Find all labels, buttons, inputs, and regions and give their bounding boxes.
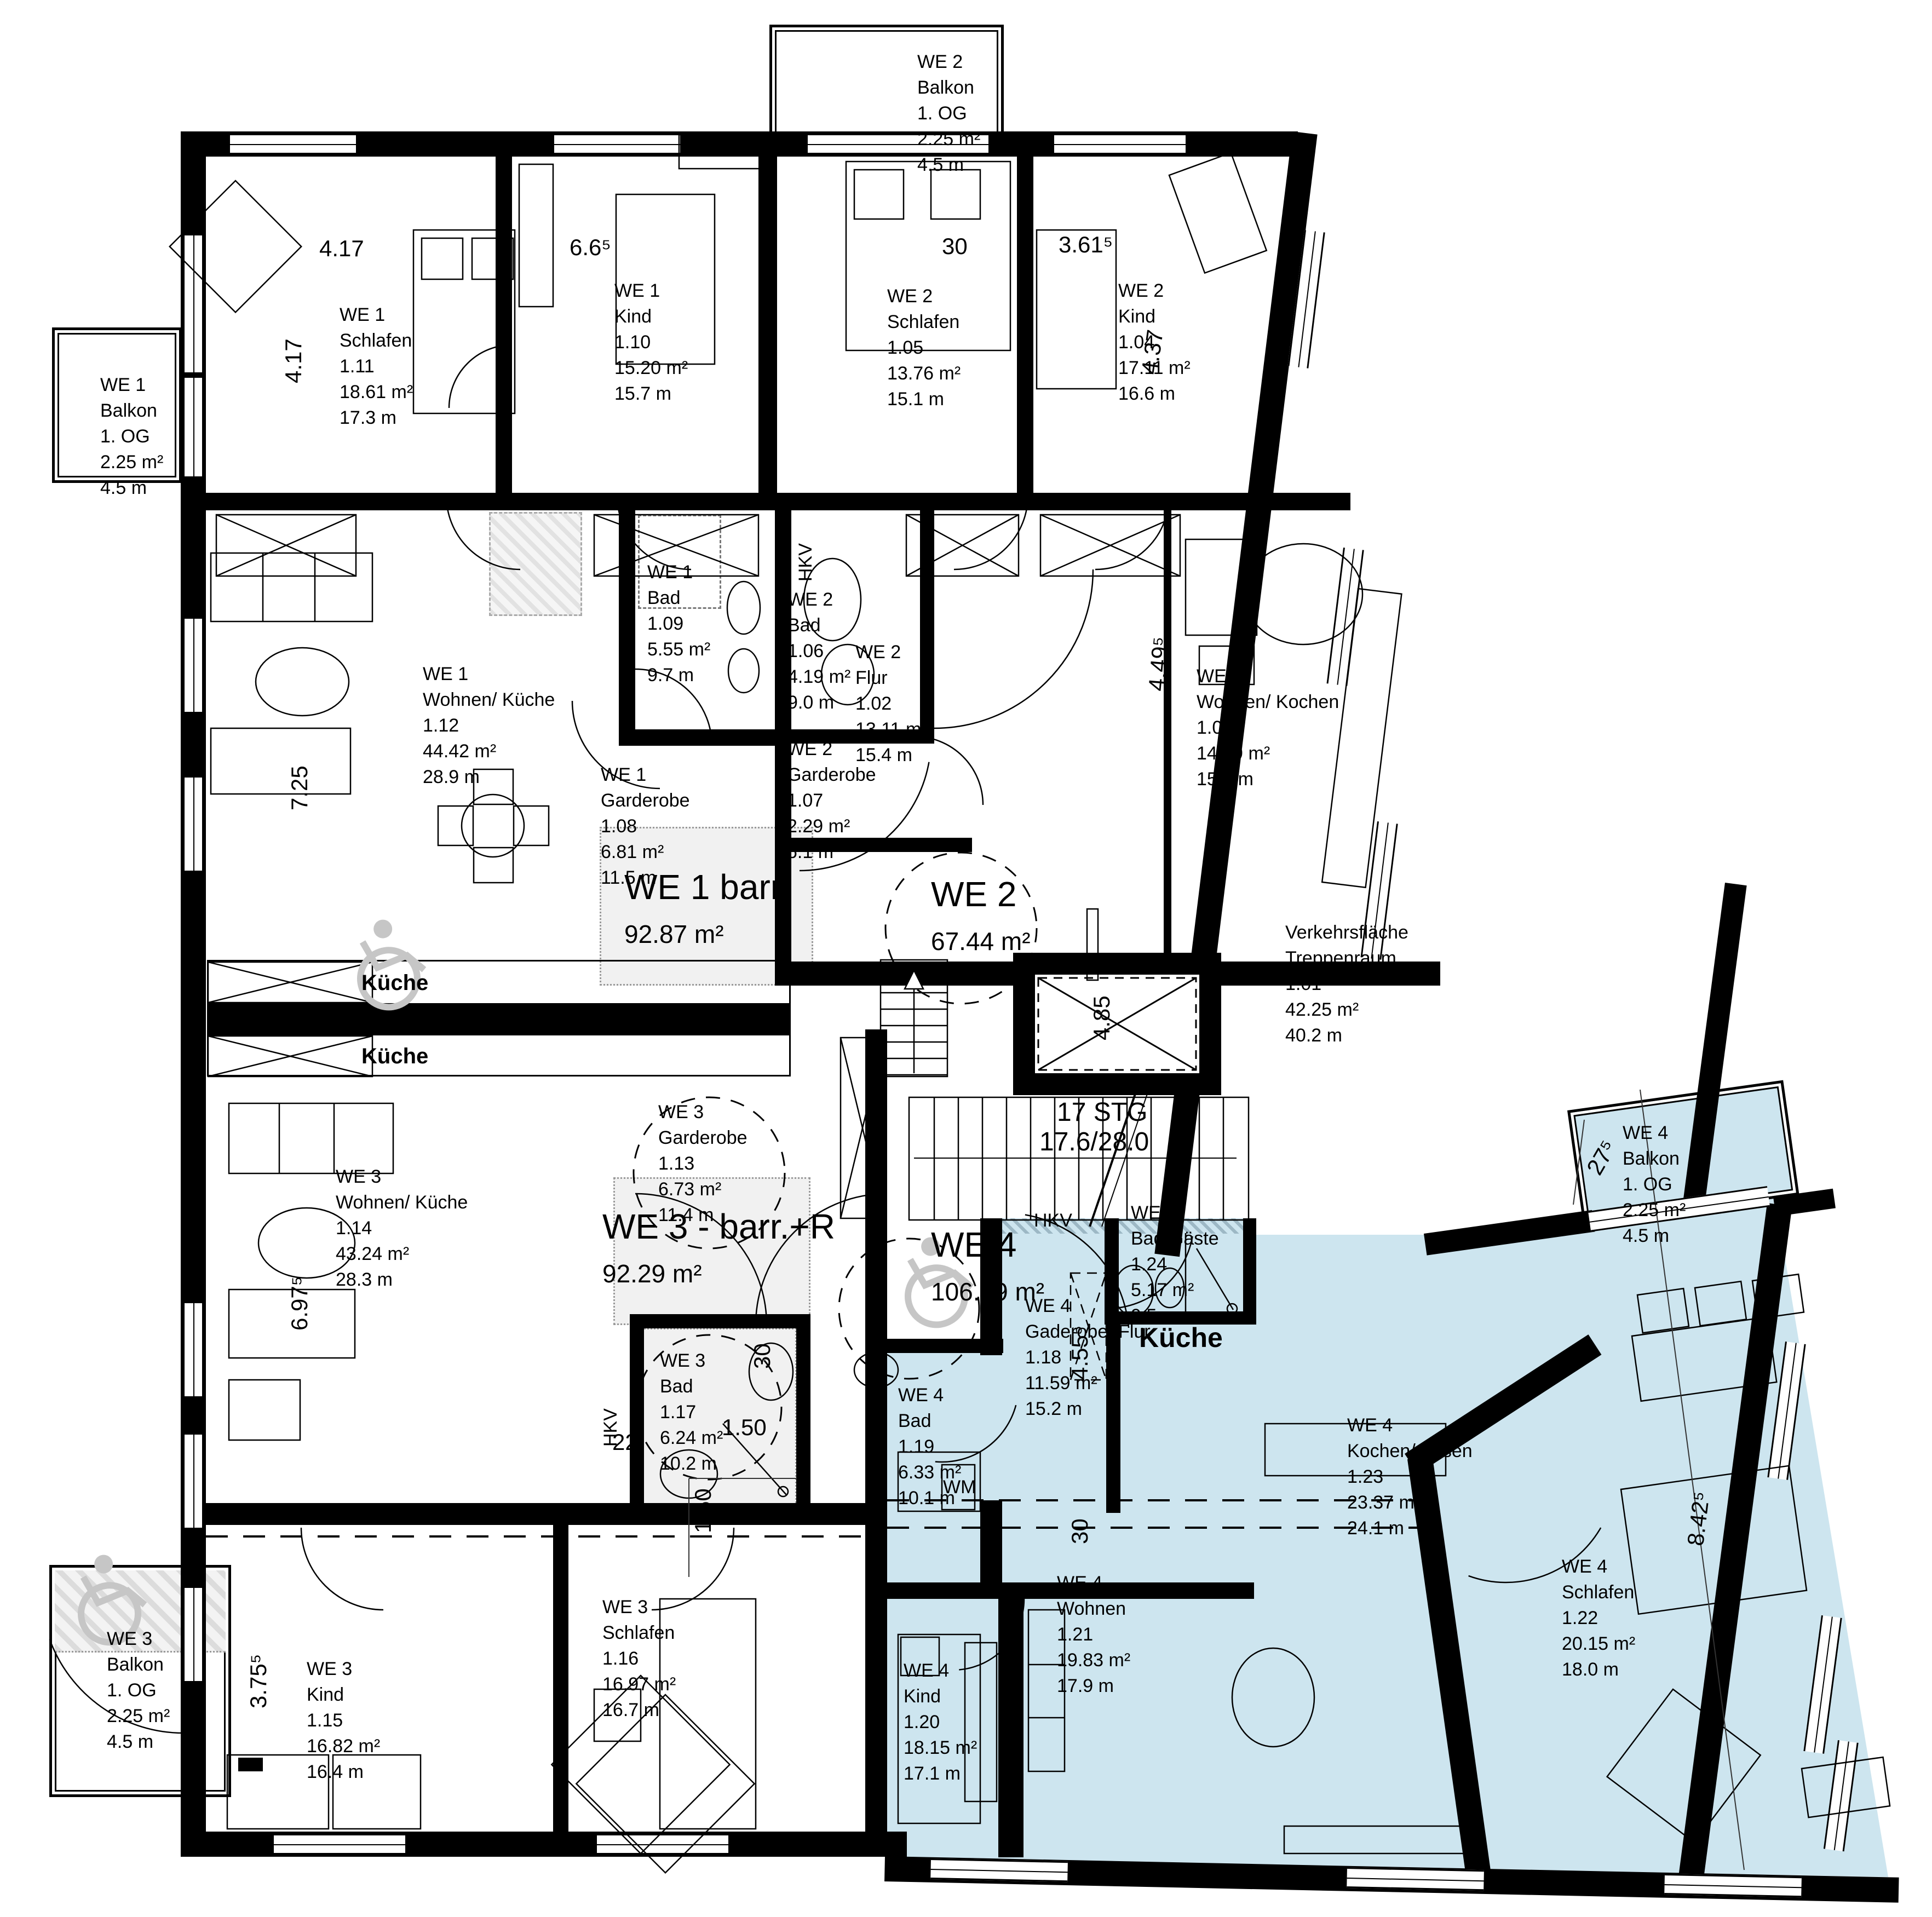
balcony-name: Balkon xyxy=(107,1652,170,1678)
balcony-area: 2.25 m² xyxy=(1623,1198,1686,1223)
furniture xyxy=(256,648,349,716)
furniture xyxy=(211,728,350,794)
room-name: Bad xyxy=(898,1408,961,1434)
room-area: 43.24 m² xyxy=(336,1241,468,1267)
room-we: WE 4 xyxy=(904,1658,977,1684)
room-label: WE 2Schlafen1.0513.76 m²15.1 m xyxy=(887,284,961,412)
balcony-we: WE 2 xyxy=(917,49,980,75)
door-arc xyxy=(449,345,512,408)
room-label: WE 2Garderobe1.072.29 m²6.1 m xyxy=(787,736,876,865)
balcony-floor: 1. OG xyxy=(100,424,163,450)
dimension-label: 4.49⁵ xyxy=(1143,636,1174,692)
furniture xyxy=(1087,909,1098,980)
door-arc xyxy=(446,496,520,569)
room-perimeter: 16.7 m xyxy=(602,1697,676,1723)
room-we: WE 2 xyxy=(787,587,850,613)
dimension-text: 30 xyxy=(1067,1518,1092,1544)
room-area: 2.29 m² xyxy=(787,814,876,839)
room-we: WE 1 xyxy=(647,560,710,585)
dimension-text: 4.85 xyxy=(1089,995,1114,1040)
door-arc xyxy=(954,496,1028,569)
room-label: WE 3Schlafen1.1616.97 m²16.7 m xyxy=(602,1594,676,1723)
furniture xyxy=(514,806,549,845)
room-perimeter: 16.6 m xyxy=(1118,381,1191,407)
room-we: WE 2 xyxy=(1118,278,1191,304)
balcony-name: Balkon xyxy=(1623,1146,1686,1172)
room-number: 1.20 xyxy=(904,1709,977,1735)
room-number: 1.06 xyxy=(787,638,850,664)
dimension-text: 6.97⁵ xyxy=(286,1276,312,1331)
apartment-name: WE 3 - barr.+R xyxy=(602,1207,835,1246)
room-label: WE 4Kind1.2018.15 m²17.1 m xyxy=(904,1658,977,1787)
room-perimeter: 16.4 m xyxy=(307,1759,380,1785)
room-label: WE 3Bad1.176.24 m²10.2 m xyxy=(660,1348,723,1477)
room-area: 23.37 m² xyxy=(1347,1490,1473,1516)
balcony-area: 2.25 m² xyxy=(107,1703,170,1729)
dimension-text: 4.17 xyxy=(319,235,364,261)
room-name: Wohnen xyxy=(1057,1596,1130,1622)
room-name: Bad xyxy=(647,585,710,611)
room-we: WE 2 xyxy=(1197,664,1339,689)
kitchen-label: Küche xyxy=(361,970,428,996)
apartment-area: 92.29 m² xyxy=(602,1260,835,1287)
dimension-label: 4.85 xyxy=(1089,995,1114,1040)
room-perimeter: 28.3 m xyxy=(336,1267,468,1293)
room-name: Bad xyxy=(660,1374,723,1400)
dimension-label: 22 xyxy=(612,1429,638,1455)
room-name: Kind xyxy=(307,1682,380,1708)
room-area: 16.82 m² xyxy=(307,1734,380,1759)
kitchen-text: Küche xyxy=(1139,1325,1223,1351)
room-number: 1.23 xyxy=(1347,1464,1473,1490)
furniture xyxy=(728,649,759,693)
room-area: 19.83 m² xyxy=(1057,1648,1130,1673)
room-name: Schlafen xyxy=(887,309,961,335)
floor-plan: WE 1Schlafen1.1118.61 m²17.3 mWE 1Kind1.… xyxy=(0,0,1932,1917)
furniture xyxy=(413,230,515,413)
furniture xyxy=(854,1352,898,1388)
room-number: 1.12 xyxy=(423,713,555,739)
door-arc xyxy=(1095,496,1169,569)
room-we: WE 4 xyxy=(1131,1200,1219,1226)
dimension-text: 1.50 xyxy=(690,1488,716,1533)
room-number: 1.08 xyxy=(601,814,690,839)
room-number: 1.07 xyxy=(787,788,876,814)
room-number: 1.02 xyxy=(855,691,928,717)
room-name: Kind xyxy=(614,304,688,330)
room-we: WE 4 xyxy=(1562,1554,1635,1580)
dimension-label: 3.75⁵ xyxy=(245,1654,271,1708)
room-number: 1.17 xyxy=(660,1400,723,1425)
room-number: 1.19 xyxy=(898,1434,961,1460)
room-label: WE 3Kind1.1516.82 m²16.4 m xyxy=(307,1656,380,1785)
apartment-title: WE 267.44 m² xyxy=(931,875,1031,955)
room-we: WE 3 xyxy=(660,1348,723,1374)
room-area: 16.97 m² xyxy=(602,1672,676,1697)
apartment-area: 67.44 m² xyxy=(931,928,1031,955)
room-number: 1.13 xyxy=(658,1151,748,1177)
room-perimeter: 15.1 m xyxy=(887,387,961,412)
room-number: 1.21 xyxy=(1057,1622,1130,1648)
elevator-shaft-x xyxy=(1038,978,1196,1070)
balcony-name: Balkon xyxy=(917,75,980,101)
kitchen-label: Küche xyxy=(361,1044,428,1069)
balcony-perimeter: 4.5 m xyxy=(917,152,980,178)
room-label: WE 4Kochen/ Essen1.2323.37 m²24.1 m xyxy=(1347,1413,1473,1541)
room-name: Garderobe xyxy=(658,1125,748,1151)
balcony-label: WE 4Balkon1. OG2.25 m²4.5 m xyxy=(1623,1120,1686,1249)
hkv-text: HKV xyxy=(1034,1208,1072,1234)
furniture xyxy=(854,170,904,219)
balcony-we: WE 4 xyxy=(1623,1120,1686,1146)
dimension-label: 30 xyxy=(942,233,968,259)
room-we: WE 1 xyxy=(340,302,413,328)
room-name: Flur xyxy=(855,665,928,691)
furniture xyxy=(679,135,761,169)
balcony-area: 2.25 m² xyxy=(917,126,980,152)
room-name: Wohnen/ Küche xyxy=(336,1190,468,1216)
furniture xyxy=(1284,1826,1470,1853)
kitchen-text: Küche xyxy=(361,1044,428,1069)
room-number: 1.22 xyxy=(1562,1605,1635,1631)
apartment-name: WE 4 xyxy=(931,1225,1044,1264)
room-label: WE 4Schlafen1.2220.15 m²18.0 m xyxy=(1562,1554,1635,1683)
furniture xyxy=(1802,1757,1890,1817)
room-we: WE 1 xyxy=(601,762,690,788)
room-perimeter: 17.9 m xyxy=(1057,1673,1130,1699)
hkv-label: HKV xyxy=(793,543,819,582)
door-arc xyxy=(301,1528,383,1610)
dimension-text: 30 xyxy=(749,1343,775,1369)
room-area: 18.15 m² xyxy=(904,1735,977,1761)
furniture xyxy=(727,582,760,634)
room-label: WE 1Wohnen/ Küche1.1244.42 m²28.9 m xyxy=(423,661,555,790)
door-arc xyxy=(617,496,691,569)
dimension-line xyxy=(1573,1120,1584,1205)
room-name: Kind xyxy=(1118,304,1191,330)
dimension-label: 6.97⁵ xyxy=(286,1276,312,1331)
dimension-label: 30 xyxy=(749,1343,775,1369)
dimension-text: 4.49⁵ xyxy=(1143,636,1174,692)
room-name: Garderobe xyxy=(601,788,690,814)
furniture xyxy=(1752,1274,1804,1319)
balcony-floor: 1. OG xyxy=(1623,1172,1686,1198)
room-number: 1.24 xyxy=(1131,1252,1219,1277)
furniture xyxy=(229,1103,393,1173)
balcony-perimeter: 4.5 m xyxy=(107,1729,170,1755)
room-perimeter: 15.7 m xyxy=(614,381,688,407)
closet-x-box xyxy=(1040,515,1180,576)
dimension-label: 7.25 xyxy=(286,765,312,810)
balcony-we: WE 3 xyxy=(107,1626,170,1652)
room-we: WE 4 xyxy=(1347,1413,1473,1438)
room-name: Wohnen/ Küche xyxy=(423,687,555,713)
balcony-label: WE 3Balkon1. OG2.25 m²4.5 m xyxy=(107,1626,170,1755)
room-name: Bad Gäste xyxy=(1131,1226,1219,1252)
furniture xyxy=(170,181,301,312)
hkv-text: HKV xyxy=(793,543,819,582)
apartment-area: 92.87 m² xyxy=(624,920,790,948)
room-name: Schlafen xyxy=(340,328,413,354)
furniture xyxy=(1244,544,1362,644)
room-name: Wohnen/ Kochen xyxy=(1197,689,1339,715)
room-perimeter: 9.0 m xyxy=(787,690,850,716)
stove xyxy=(238,1758,263,1771)
room-we: WE 2 xyxy=(887,284,961,309)
wm-label: WM xyxy=(943,1475,976,1500)
room-perimeter: 15.2 m xyxy=(1025,1396,1151,1422)
room-name: Treppenraum xyxy=(1285,946,1408,971)
room-number: 1.15 xyxy=(307,1708,380,1734)
room-name: Schlafen xyxy=(1562,1580,1635,1605)
room-area: 5.55 m² xyxy=(647,637,710,663)
furniture xyxy=(519,164,553,307)
hkv-label: HKV xyxy=(1034,1208,1072,1234)
furniture xyxy=(438,806,473,845)
furniture xyxy=(1632,1317,1776,1401)
room-we: WE 2 xyxy=(787,736,876,762)
room-label: WE 4Wohnen1.2119.83 m²17.9 m xyxy=(1057,1570,1130,1699)
balcony-perimeter: 4.5 m xyxy=(1623,1223,1686,1249)
room-we: WE 3 xyxy=(658,1099,748,1125)
room-name: Schlafen xyxy=(602,1620,676,1646)
balcony-floor: 1. OG xyxy=(917,101,980,126)
apartment-title: WE 4106.89 m² xyxy=(931,1225,1044,1305)
room-number: 1.16 xyxy=(602,1646,676,1672)
closet-x-box xyxy=(208,1036,372,1076)
room-number: 1.01 xyxy=(1285,971,1408,997)
apartment-title: WE 1 barr.92.87 m² xyxy=(624,868,790,948)
room-number: 1.11 xyxy=(340,354,413,379)
kitchen-text: Küche xyxy=(361,970,428,996)
closet-x-box xyxy=(208,962,372,1003)
dimension-text: 3.75⁵ xyxy=(994,1654,1020,1708)
furniture xyxy=(229,1380,300,1440)
dimension-text: 3.75⁵ xyxy=(245,1654,271,1708)
room-name: Garderobe xyxy=(787,762,876,788)
room-area: 15.20 m² xyxy=(614,355,688,381)
dimension-text: 1.50 xyxy=(722,1414,767,1440)
stairs-label: 17 STG xyxy=(1057,1098,1147,1127)
dimension-text: 7.25 xyxy=(286,765,312,810)
furniture xyxy=(1169,153,1267,273)
room-name: Kochen/ Essen xyxy=(1347,1438,1473,1464)
dimension-label: 1.50 xyxy=(722,1414,767,1440)
room-we: WE 3 xyxy=(336,1164,468,1190)
room-area: 14.69 m² xyxy=(1197,741,1339,767)
balcony-name: Balkon xyxy=(100,398,163,424)
apartment-title: WE 3 - barr.+R92.29 m² xyxy=(602,1207,835,1287)
furniture xyxy=(211,553,372,621)
room-area: 13.76 m² xyxy=(887,361,961,387)
stairs xyxy=(881,960,1249,1227)
room-label: VerkehrsflächeTreppenraum1.0142.25 m²40.… xyxy=(1285,920,1408,1049)
balcony-floor: 1. OG xyxy=(107,1678,170,1703)
furniture xyxy=(1186,539,1257,635)
kitchen-label: Küche xyxy=(1139,1325,1223,1351)
dimension-label: 3.61⁵ xyxy=(1059,232,1113,257)
room-number: 1.14 xyxy=(336,1216,468,1241)
furniture xyxy=(422,238,463,279)
room-number: 1.03 xyxy=(1197,715,1339,741)
room-label: WE 3Wohnen/ Küche1.1443.24 m²28.3 m xyxy=(336,1164,468,1293)
room-we: WE 1 xyxy=(614,278,688,304)
room-perimeter: 17.3 m xyxy=(340,405,413,431)
room-we: WE 3 xyxy=(307,1656,380,1682)
closet-x-box xyxy=(841,1038,884,1218)
apartment-name: WE 2 xyxy=(931,875,1031,913)
balcony-area: 2.25 m² xyxy=(100,450,163,475)
room-label: WE 2Bad1.064.19 m²9.0 m xyxy=(787,587,850,716)
dimension-label: 30 xyxy=(1067,1518,1092,1544)
dimension-label: 4.17 xyxy=(280,338,306,383)
room-area: 20.15 m² xyxy=(1562,1631,1635,1657)
apartment-name: WE 1 barr. xyxy=(624,868,790,906)
room-we: WE 4 xyxy=(1057,1570,1130,1596)
room-perimeter: 17.1 m xyxy=(904,1761,977,1787)
apartment-area: 106.89 m² xyxy=(931,1278,1044,1305)
closet-x-box xyxy=(216,515,356,576)
balcony-label: WE 2Balkon1. OG2.25 m²4.5 m xyxy=(917,49,980,178)
room-number: 1.10 xyxy=(614,330,688,355)
stairs-label: 17.6/28.0 xyxy=(1039,1128,1149,1156)
dimension-text: 22 xyxy=(612,1429,638,1455)
room-perimeter: 9.7 m xyxy=(647,663,710,688)
dimension-text: 6.6⁵ xyxy=(570,234,611,260)
room-number: 1.05 xyxy=(887,335,961,361)
furniture xyxy=(1695,1281,1746,1326)
room-we: Verkehrsfläche xyxy=(1285,920,1408,946)
room-label: WE 1Bad1.095.55 m²9.7 m xyxy=(647,560,710,688)
room-name: Bad xyxy=(787,613,850,638)
balcony-perimeter: 4.5 m xyxy=(100,475,163,501)
room-we: WE 1 xyxy=(423,661,555,687)
room-label: WE 1Kind1.1015.20 m²15.7 m xyxy=(614,278,688,407)
furniture xyxy=(1637,1288,1689,1333)
room-area: 4.19 m² xyxy=(787,664,850,690)
stairs-steps: 17 STG xyxy=(1057,1098,1147,1127)
room-perimeter: 15.6 m xyxy=(1197,767,1339,792)
balcony-we: WE 1 xyxy=(100,372,163,398)
dimension-label: 4.17 xyxy=(319,235,364,261)
furniture xyxy=(1232,1648,1314,1747)
room-perimeter: 40.2 m xyxy=(1285,1023,1408,1049)
dimension-text: 3.61⁵ xyxy=(1059,232,1113,257)
closet-x-box xyxy=(906,515,1019,576)
room-perimeter: 24.1 m xyxy=(1347,1516,1473,1541)
dimension-text: 4.17 xyxy=(280,338,306,383)
room-perimeter: 18.0 m xyxy=(1562,1657,1635,1683)
room-perimeter: 6.1 m xyxy=(787,839,876,865)
room-number: 1.09 xyxy=(647,611,710,637)
room-area: 44.42 m² xyxy=(423,739,555,764)
room-area: 18.61 m² xyxy=(340,379,413,405)
linework-layer xyxy=(0,0,1932,1917)
balcony-label: WE 1Balkon1. OG2.25 m²4.5 m xyxy=(100,372,163,501)
dimension-label: 6.6⁵ xyxy=(570,234,611,260)
dimension-label: 3.75⁵ xyxy=(994,1654,1020,1708)
furniture xyxy=(472,238,513,279)
room-area: 6.81 m² xyxy=(601,839,690,865)
dimension-text: 4.55⁵ xyxy=(1067,1326,1092,1380)
dimension-label: 4.55⁵ xyxy=(1067,1326,1092,1380)
room-label: WE 2Wohnen/ Kochen1.0314.69 m²15.6 m xyxy=(1197,664,1339,792)
room-label: WE 1Schlafen1.1118.61 m²17.3 m xyxy=(340,302,413,431)
room-we: WE 3 xyxy=(602,1594,676,1620)
room-area: 42.25 m² xyxy=(1285,997,1408,1023)
room-perimeter: 28.9 m xyxy=(423,764,555,790)
stairs-riser: 17.6/28.0 xyxy=(1039,1128,1149,1156)
dimension-text: 30 xyxy=(942,233,968,259)
room-area: 6.24 m² xyxy=(660,1425,723,1451)
wm-text: WM xyxy=(943,1475,976,1500)
room-area: 6.73 m² xyxy=(658,1177,748,1202)
dimension-label: 1.50 xyxy=(690,1488,716,1533)
room-perimeter: 10.2 m xyxy=(660,1451,723,1477)
door-arc xyxy=(934,569,1093,728)
furniture xyxy=(1621,1466,1807,1614)
room-name: Kind xyxy=(904,1684,977,1709)
room-we: WE 4 xyxy=(898,1383,961,1408)
room-we: WE 2 xyxy=(855,640,928,665)
